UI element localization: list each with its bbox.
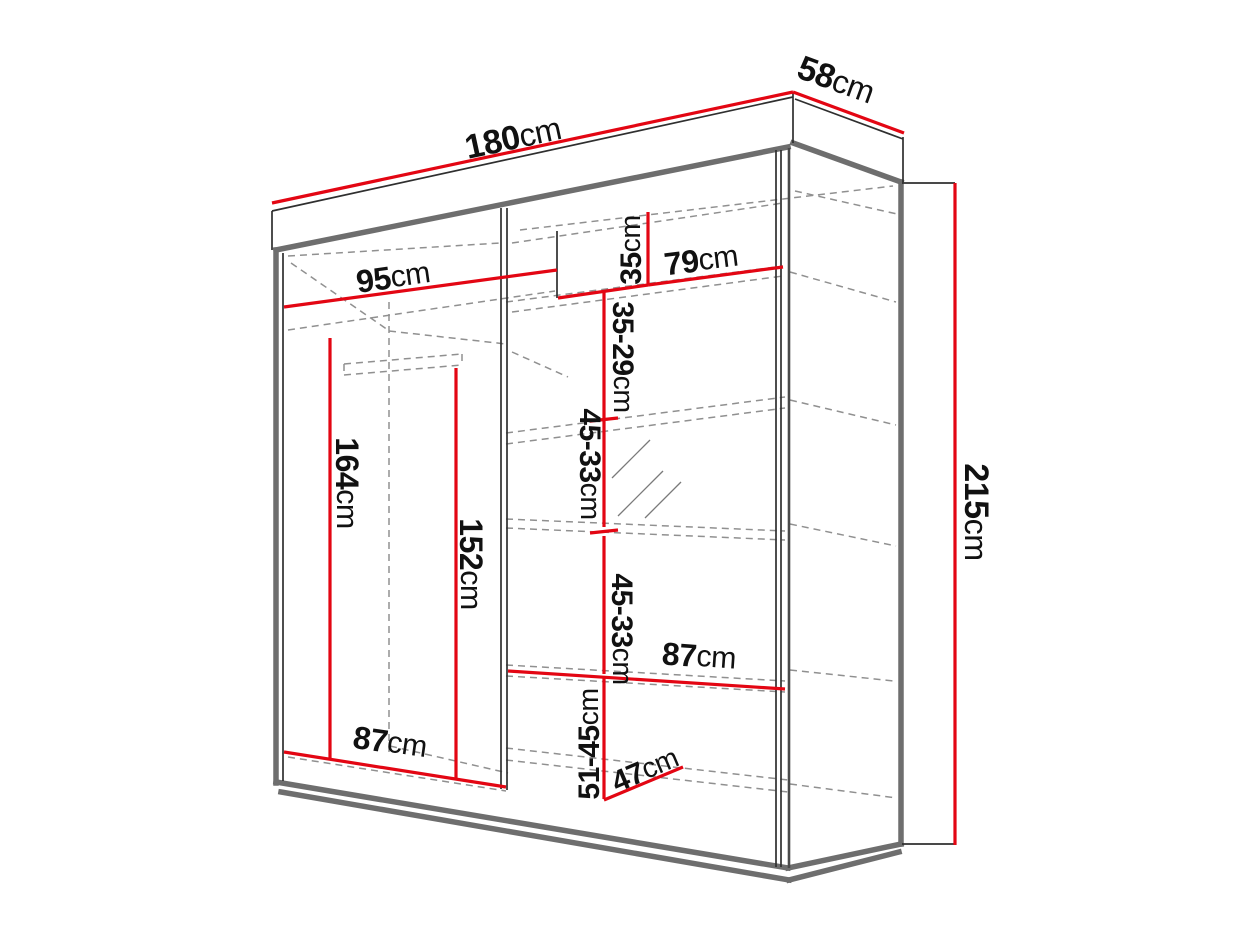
right-width-line bbox=[508, 671, 785, 689]
dimension-label-height-total: 215cm bbox=[957, 463, 995, 560]
mirror-hatch-3 bbox=[645, 482, 681, 518]
mirror-hatch-1 bbox=[612, 440, 650, 478]
ceiling-side-hidden bbox=[795, 191, 897, 214]
hanging-rail-top bbox=[344, 354, 462, 364]
shelf4-side-hidden bbox=[790, 670, 894, 681]
left-top-shelf-hidden bbox=[288, 291, 555, 330]
shelf3-side-hidden bbox=[790, 524, 896, 546]
top-panel-top-edge bbox=[272, 97, 793, 211]
shelf1-side-hidden bbox=[790, 272, 896, 302]
dimension-label-top-left-width: 95cm bbox=[354, 254, 432, 300]
dimension-label-cubby-height: 35cm bbox=[615, 215, 648, 284]
shelf2-depth-hidden bbox=[512, 352, 568, 377]
plinth-bottom-edge bbox=[281, 792, 789, 880]
left-top-shelf-back-hidden bbox=[389, 331, 506, 344]
bottom-front-edge bbox=[276, 782, 788, 868]
diagram-canvas: 180cm58cm215cm95cm79cm35cm35-29cm45-33cm… bbox=[0, 0, 1243, 932]
shelf3-back-hidden bbox=[506, 528, 785, 540]
dimension-label-left-height: 164cm bbox=[329, 437, 365, 528]
dimension-label-shelf-gap-4: 51-45cm bbox=[573, 688, 606, 799]
shelf2-side-hidden bbox=[790, 400, 896, 425]
dimension-label-inner-height: 152cm bbox=[453, 518, 489, 609]
dimension-label-shelf-gap-2: 45-33cm bbox=[574, 408, 607, 519]
left-floor-hidden bbox=[288, 757, 506, 791]
shelf2-back-hidden bbox=[506, 408, 785, 444]
dimension-label-shelf-gap-3: 45-33cm bbox=[606, 573, 639, 684]
dimension-label-right-width: 87cm bbox=[661, 635, 737, 676]
floor-side-hidden bbox=[790, 784, 897, 798]
wardrobe-dimension-diagram: 180cm58cm215cm95cm79cm35cm35-29cm45-33cm… bbox=[0, 0, 1243, 932]
hanging-rail-bottom bbox=[344, 365, 462, 375]
side-top-edge bbox=[793, 143, 901, 182]
dimension-label-depth-total: 58cm bbox=[792, 49, 879, 112]
shelf-gap-tick-2 bbox=[590, 530, 618, 533]
dimension-label-left-width: 87cm bbox=[351, 719, 429, 765]
top-panel-front-bottom-edge bbox=[276, 147, 788, 250]
mirror-hatch-group bbox=[612, 440, 681, 518]
shelf2-front-hidden bbox=[506, 397, 785, 433]
mirror-hatch-2 bbox=[618, 471, 663, 516]
ceiling-front-hidden bbox=[288, 243, 500, 256]
ceiling-back-hidden bbox=[520, 186, 893, 230]
dimension-label-shelf-gap-1: 35-29cm bbox=[607, 301, 640, 412]
top-panel-rear-top-edge bbox=[795, 99, 903, 139]
dimension-label-depth-inner: 47cm bbox=[607, 741, 684, 798]
